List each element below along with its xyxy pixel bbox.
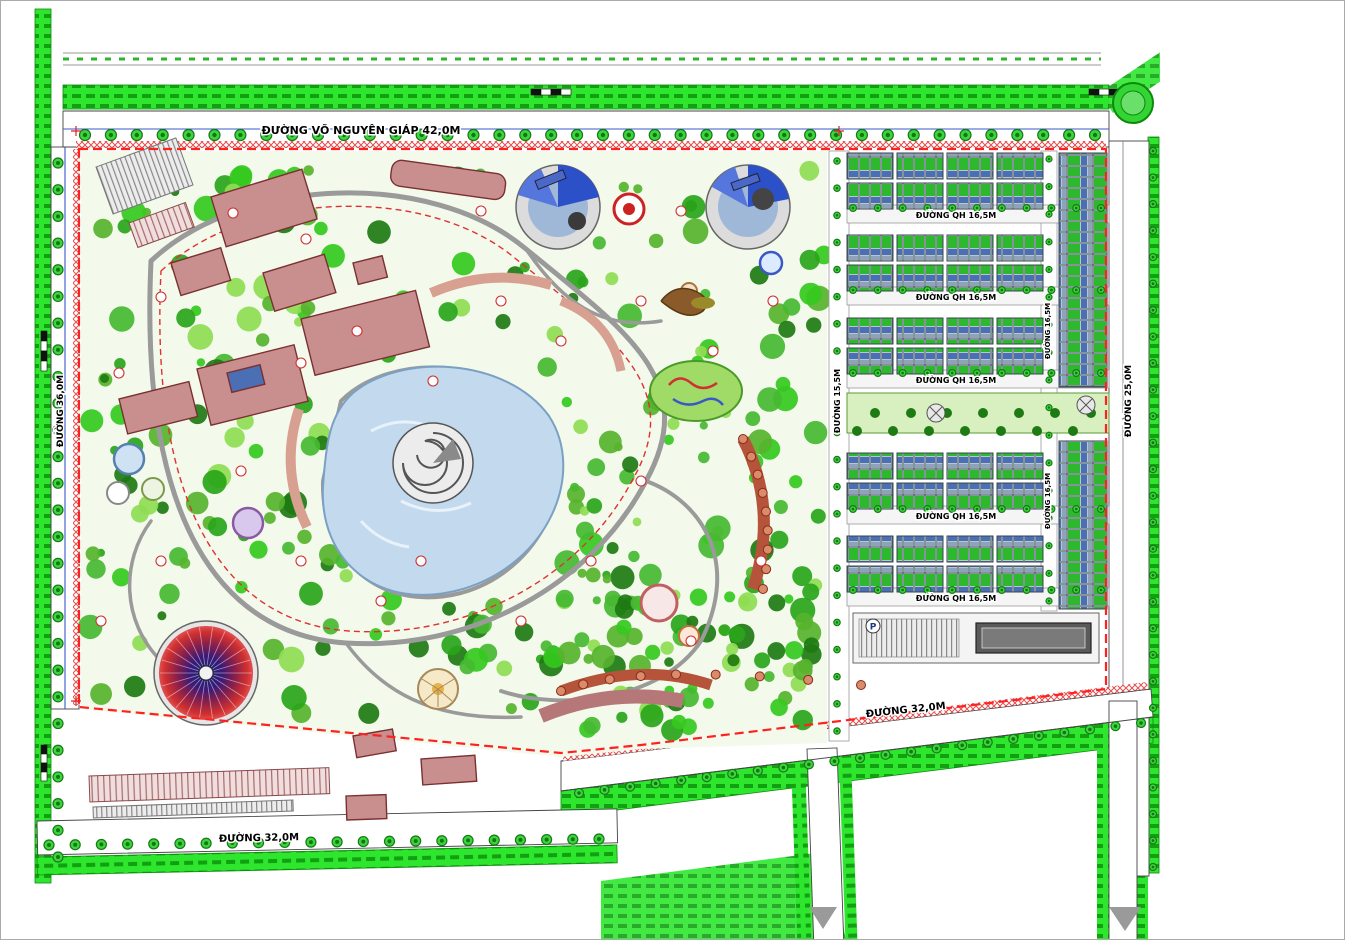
road-label-qh-5: ĐƯỜNG QH 16,5M	[916, 592, 996, 603]
road-label-qh-4: ĐƯỜNG QH 16,5M	[916, 510, 996, 521]
waterpark-pool-2	[706, 165, 790, 249]
circus-stadium	[154, 621, 258, 725]
irrigation-canal	[63, 53, 1101, 65]
parking-lot: P	[853, 613, 1099, 663]
road-label-qh-2: ĐƯỜNG QH 16,5M	[916, 291, 996, 302]
road-label-right: ĐƯỜNG 25,0M	[1122, 365, 1134, 437]
masterplan-sheet: P ĐƯỜNG VÕ NGUYÊN GIÁP 42,0M ĐƯỜNG 36,0M…	[0, 0, 1345, 940]
road-label-qh-3: ĐƯỜNG QH 16,5M	[916, 374, 996, 385]
site-plan-drawing: P ĐƯỜNG VÕ NGUYÊN GIÁP 42,0M ĐƯỜNG 36,0M…	[1, 1, 1161, 940]
road-label-left: ĐƯỜNG 36,0M	[54, 375, 66, 447]
parking-p-label: P	[870, 623, 877, 633]
road-label-housing-v2: ĐƯỜNG 16,5M	[1043, 473, 1052, 529]
title-panel: QUY HOẠCH CHI TIẾT TỶ LỆ 1/500 CÔNG VIÊN…	[1160, 1, 1345, 940]
road-label-mid: ĐƯỜNG 15,5M	[831, 369, 842, 433]
waterpark-pool-1	[516, 165, 600, 249]
road-label-vo-nguyen-giap: ĐƯỜNG VÕ NGUYÊN GIÁP 42,0M	[262, 124, 461, 137]
road-label-housing-v1: ĐƯỜNG 16,5M	[1043, 303, 1052, 359]
road-label-qh-1: ĐƯỜNG QH 16,5M	[916, 209, 996, 220]
